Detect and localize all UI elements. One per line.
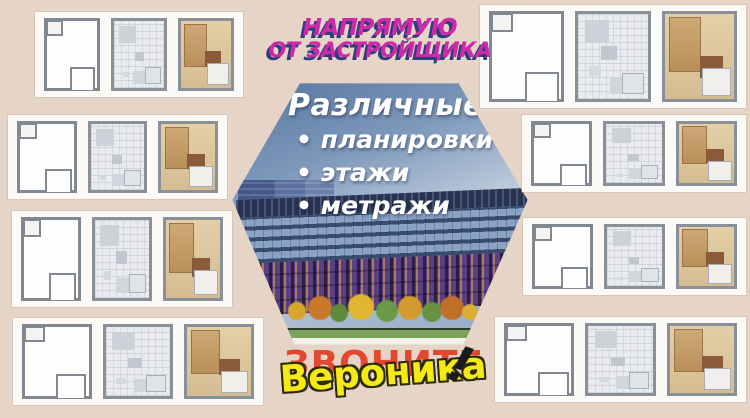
- floorplan-grey: [585, 323, 655, 396]
- floorplan-outline: [44, 18, 100, 91]
- floorplan-color: [676, 224, 737, 289]
- floorplan-outline: [504, 323, 574, 396]
- tree: [376, 300, 398, 322]
- floorplan-outline: [21, 217, 81, 301]
- card-bottom-left: [13, 318, 263, 405]
- floorplan-color: [184, 324, 254, 399]
- floorplan-grey: [111, 18, 167, 91]
- card-left-2: [8, 115, 227, 199]
- tree: [330, 304, 348, 322]
- tree: [398, 296, 422, 320]
- card-top-left: [35, 12, 243, 97]
- tree: [308, 296, 332, 320]
- floorplan-color: [667, 323, 737, 396]
- hexagon-bullet: • метражи: [288, 189, 493, 222]
- tree: [348, 294, 374, 320]
- headline-line2: ОТ ЗАСТРОЙЩИКА: [232, 39, 528, 61]
- floorplan-color: [158, 121, 218, 193]
- developer-ad-poster: Различные • планировки• этажи• метражи Н…: [0, 0, 750, 418]
- floorplan-color: [163, 217, 223, 301]
- tree: [422, 302, 442, 322]
- headline-line1: НАПРЯМУЮ: [232, 17, 528, 39]
- floorplan-outline: [531, 121, 592, 186]
- card-left-3: [12, 211, 232, 307]
- hexagon-text-block: Различные • планировки• этажи• метражи: [288, 88, 493, 222]
- floorplan-grey: [603, 121, 664, 186]
- tree: [440, 296, 464, 320]
- floorplan-color: [662, 11, 737, 102]
- floorplan-color: [676, 121, 737, 186]
- hexagon-bullet: • этажи: [288, 156, 493, 189]
- tree: [462, 304, 478, 320]
- floorplan-grey: [88, 121, 148, 193]
- hexagon-bullet-list: • планировки• этажи• метражи: [288, 123, 493, 222]
- floorplan-color: [178, 18, 234, 91]
- floorplan-outline: [22, 324, 92, 399]
- hexagon-title: Различные: [288, 88, 493, 123]
- floorplan-outline: [532, 224, 593, 289]
- floorplan-grey: [92, 217, 152, 301]
- card-bottom-right: [495, 317, 746, 402]
- floorplan-outline: [17, 121, 77, 193]
- card-right-2: [522, 115, 746, 192]
- tree: [288, 302, 306, 320]
- hexagon-bullet: • планировки: [288, 123, 493, 156]
- headline: НАПРЯМУЮ ОТ ЗАСТРОЙЩИКА: [232, 17, 528, 61]
- floorplan-grey: [103, 324, 173, 399]
- hexagon-banner: Различные • планировки• этажи• метражи: [230, 82, 530, 350]
- floorplan-grey: [575, 11, 650, 102]
- floorplan-grey: [604, 224, 665, 289]
- card-right-3: [523, 218, 746, 295]
